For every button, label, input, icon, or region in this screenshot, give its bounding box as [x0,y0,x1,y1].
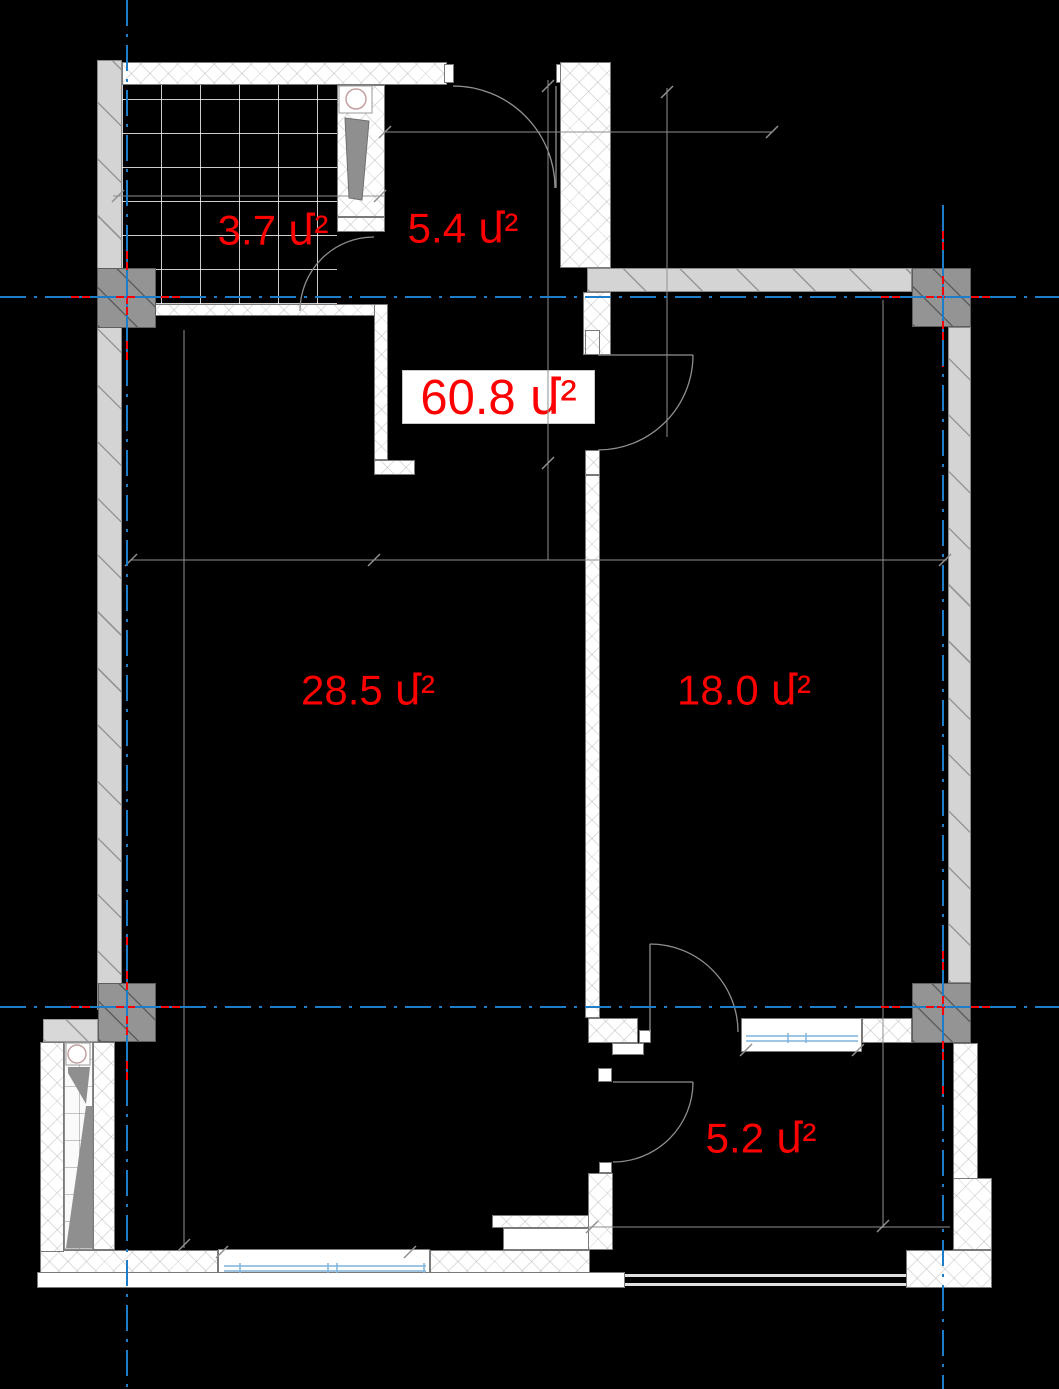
window-52-frame [741,1018,862,1052]
wall-right-lower-2 [953,1178,992,1250]
area-label-room-right: 18.0 մ² [677,666,811,715]
wall-top [122,62,447,85]
floor-plan-canvas: 60.8 մ² [0,0,1059,1389]
wall-step-2 [598,1068,612,1082]
wall-bottom-center [430,1250,590,1273]
axis-vertical-left [126,0,128,1389]
wall-18-bottom-left-block [588,1018,638,1043]
fixture-niche-stub [337,217,385,232]
wall-kitchen-partition [374,304,388,460]
total-area-label: 60.8 մ² [420,369,576,426]
total-area-box: 60.8 մ² [402,370,595,424]
wall-step-1 [612,1043,644,1055]
wall-stub-bottom-left [43,1019,98,1042]
entrance-jamb-left [444,64,454,83]
wall-bottom-right-corner [906,1250,992,1288]
ladder-shaft [64,1042,93,1250]
door-jamb-18-bottom [585,450,600,475]
wall-52-left-lower [588,1173,613,1250]
door-swing-arc-entrance [453,86,555,188]
wall-kitchen-partition-foot [374,460,415,475]
window-bottom-frame [218,1249,430,1273]
wall-central-partition [585,475,600,1018]
axis-horizontal-bottom [0,1006,1059,1008]
wall-right-exterior [948,327,971,983]
wall-18-bottom-right [862,1018,912,1043]
door-jamb-52-lower [599,1162,612,1173]
wall-right-lower-1 [953,1043,978,1183]
loggia-parapet [625,1274,906,1286]
wall-entrance-right [560,62,611,268]
area-label-room-bottom-right: 5.2 մ² [706,1114,817,1163]
wall-shaft-right [93,1042,115,1250]
area-label-hallway: 5.4 մ² [408,204,519,253]
door-swing-arc-room-right [598,355,693,450]
wall-bathroom-bottom [122,304,386,316]
door-swing-arc-52-lower [613,1082,693,1162]
fixture-niche [337,85,385,217]
wall-top-right-exterior [587,268,912,292]
door-jamb-18-top [585,330,600,355]
wall-left-exterior [97,60,122,1010]
axis-horizontal-top [0,296,1059,298]
wall-bottom-left [40,1250,218,1273]
area-label-room-left: 28.5 մ² [301,666,435,715]
area-label-bathroom: 3.7 մ² [218,206,329,255]
door-jamb-52-upper [639,1030,651,1043]
wall-balcony-left [40,1042,64,1252]
axis-vertical-right [942,205,944,1389]
door-swing-arc-52-upper [650,944,738,1032]
